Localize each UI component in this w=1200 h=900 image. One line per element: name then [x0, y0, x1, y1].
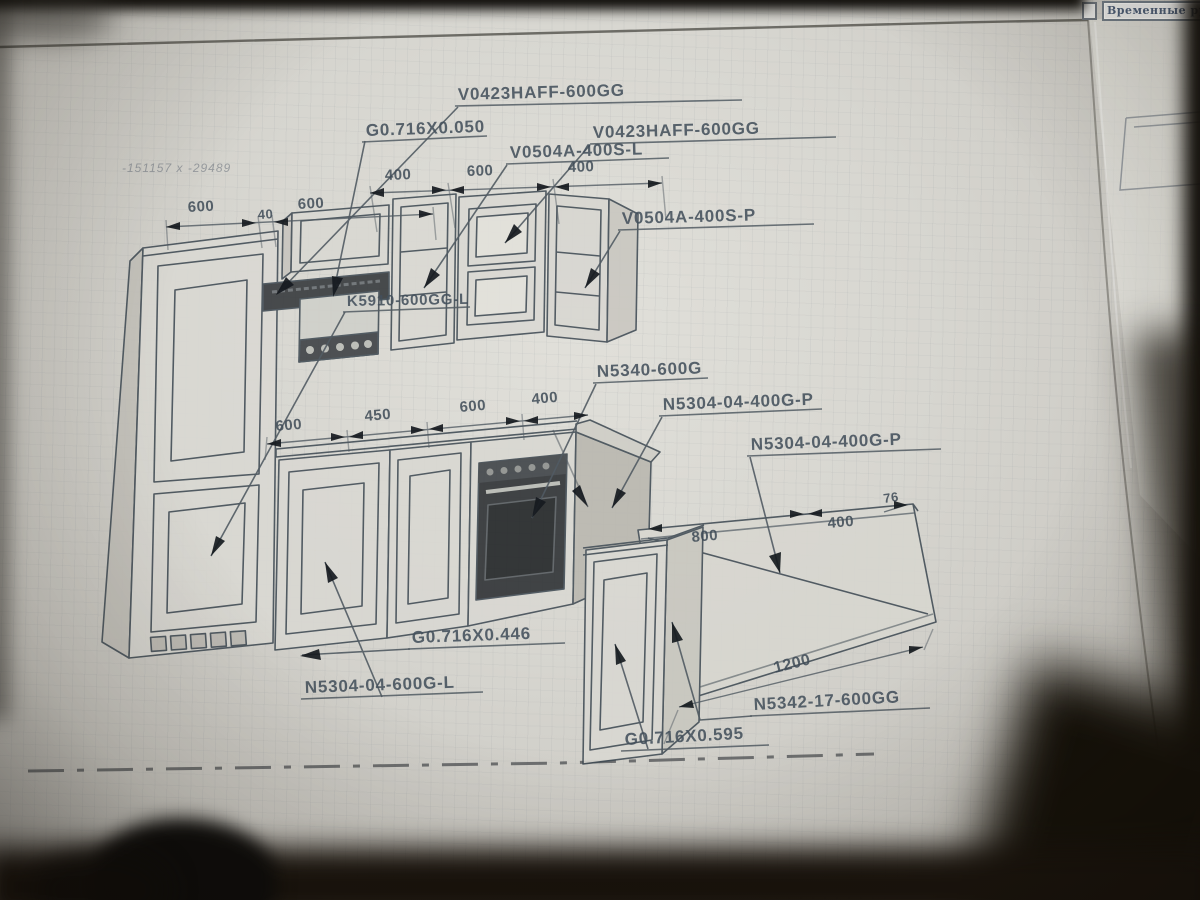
- tall-cabinet: [102, 231, 278, 658]
- label-oven-housing: N5340-600G: [596, 358, 702, 381]
- dim-base-450: 450: [364, 406, 392, 425]
- kitchen-cad-drawing: -151157 x -29489 V0423HAFF-600GG G0.716X…: [0, 0, 1200, 900]
- adjacent-sheet-lines: [1120, 112, 1200, 190]
- label-wall-cabinet-600-1: V0423HAFF-600GG: [458, 81, 625, 104]
- label-worktop-446: G0.716X0.446: [411, 624, 531, 647]
- island-cabinet-side: [662, 527, 703, 754]
- dim-island-400: 400: [827, 513, 855, 532]
- dim-island-800: 800: [691, 527, 719, 546]
- dim-wall-600: 600: [467, 162, 494, 180]
- dim-upper-40: 40: [257, 206, 273, 222]
- dim-base-400: 400: [531, 389, 559, 408]
- dim-wall-400a: 400: [385, 166, 412, 184]
- dim-island-76: 76: [882, 489, 899, 506]
- label-base-400-p-2: N5304-04-400G-P: [750, 430, 901, 454]
- dim-upper-600a: 600: [187, 198, 214, 216]
- wall-dash-line: [28, 754, 874, 771]
- label-wall-cabinet-400-r: V0504A-400S-P: [622, 205, 757, 228]
- wall-cabinet-600-glass: [457, 191, 546, 340]
- label-wall-cabinet-600-2: V0423HAFF-600GG: [593, 119, 760, 142]
- toolbar-small-box[interactable]: [1082, 2, 1097, 20]
- base-cabinet-600: [275, 450, 390, 650]
- dim-upper-600b: 600: [297, 195, 324, 213]
- dim-base-600b: 600: [459, 397, 487, 416]
- oven-glass: [485, 497, 556, 580]
- temporary-dimensions-button[interactable]: Временные ру: [1102, 1, 1200, 21]
- hood-cabinet: [263, 205, 389, 362]
- wall-cabinet-400-left: [391, 194, 456, 350]
- photo-of-kitchen-drawing: -151157 x -29489 V0423HAFF-600GG G0.716X…: [0, 0, 1200, 900]
- app-ui-fragment: Временные ру: [1082, 0, 1200, 21]
- dim-base-600a: 600: [275, 416, 303, 435]
- dim-wall-400b: 400: [568, 158, 595, 176]
- coordinates-readout: -151157 x -29489: [122, 161, 231, 175]
- label-hood-unit: K5910-600GG-L: [347, 291, 469, 310]
